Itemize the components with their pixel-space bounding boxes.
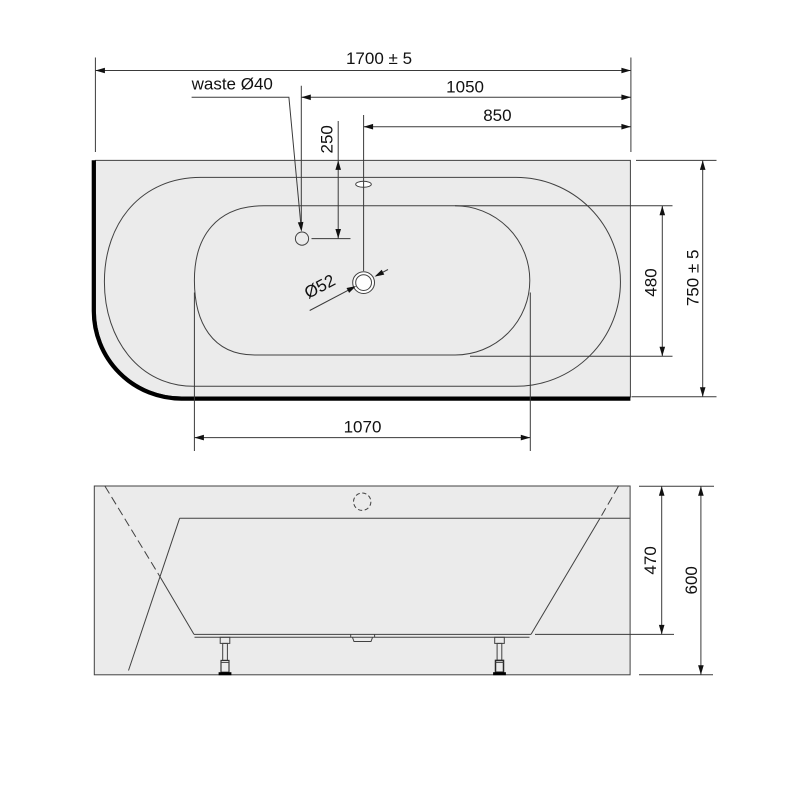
svg-text:850: 850 xyxy=(483,106,511,125)
svg-text:600: 600 xyxy=(682,566,701,594)
svg-text:1070: 1070 xyxy=(344,417,382,436)
svg-text:1050: 1050 xyxy=(446,77,484,96)
svg-text:470: 470 xyxy=(641,546,660,574)
svg-text:480: 480 xyxy=(642,268,661,296)
svg-text:1700 ± 5: 1700 ± 5 xyxy=(346,49,412,68)
svg-text:250: 250 xyxy=(317,125,336,153)
svg-text:waste Ø40: waste Ø40 xyxy=(191,75,273,94)
svg-text:750 ± 5: 750 ± 5 xyxy=(683,249,702,306)
